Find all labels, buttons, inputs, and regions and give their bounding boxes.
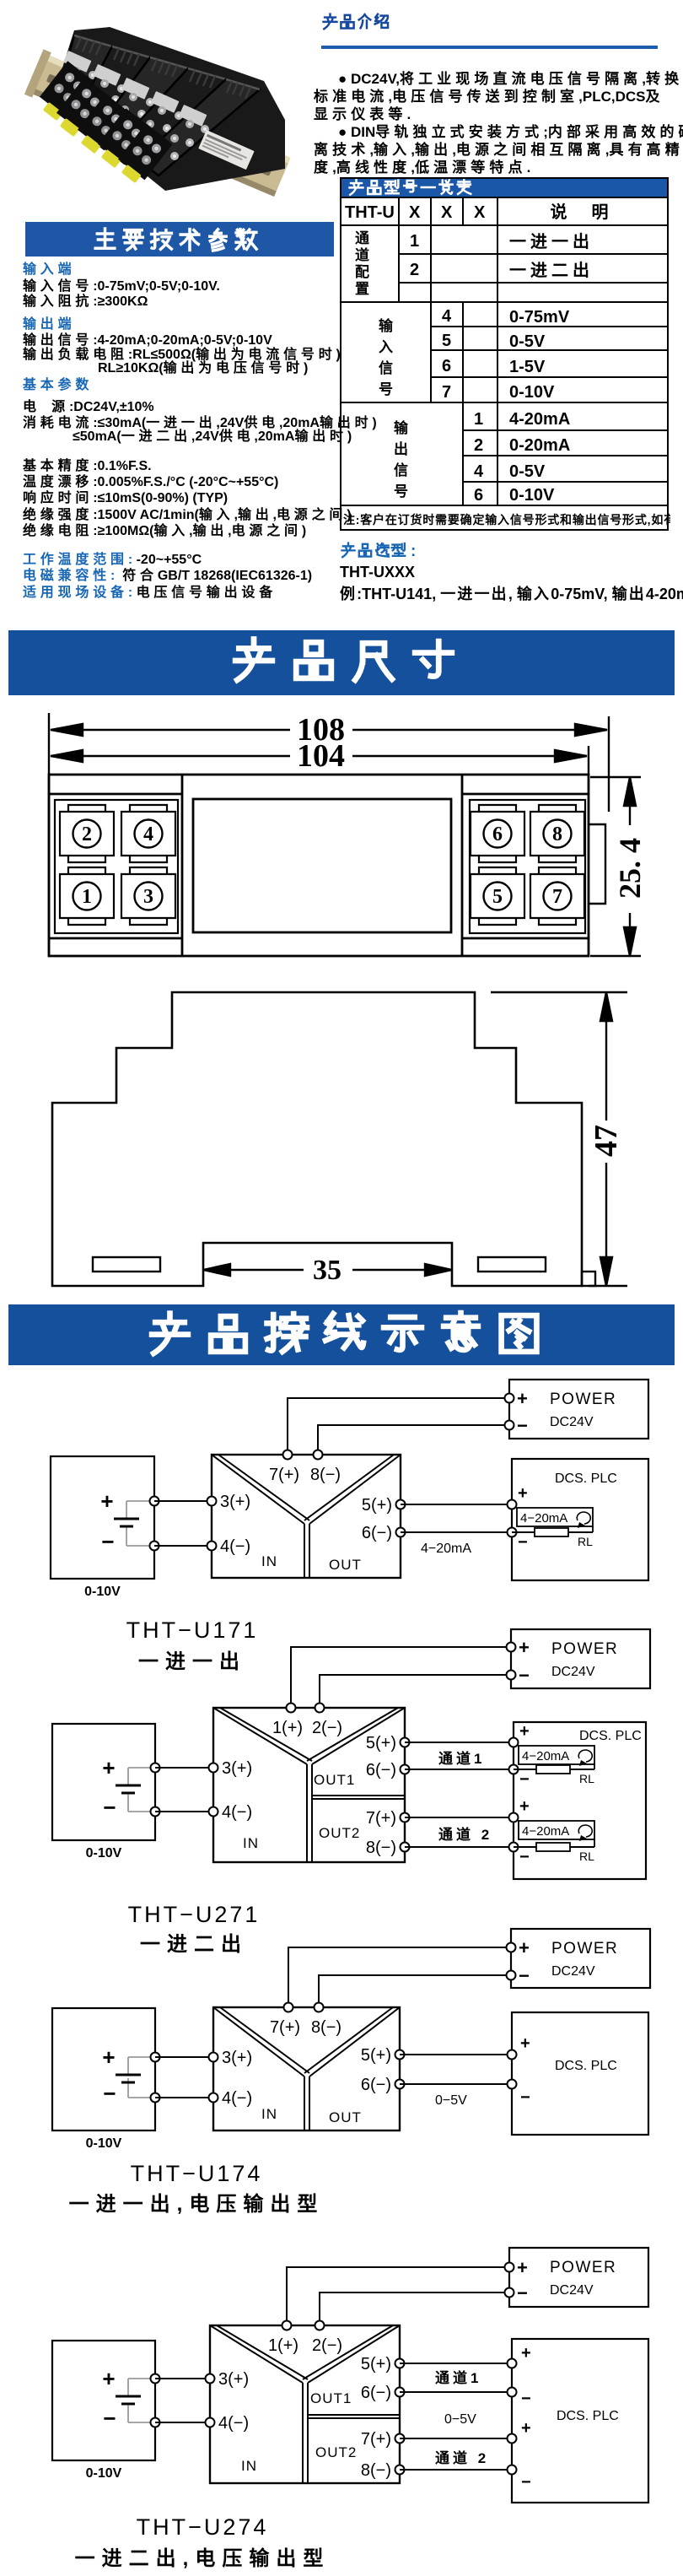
- svg-text:X: X: [474, 203, 486, 222]
- svg-text:通: 通: [355, 230, 369, 246]
- svg-text:3: 3: [143, 886, 153, 908]
- svg-text:−: −: [521, 2473, 531, 2492]
- svg-text:7: 7: [442, 383, 451, 402]
- svg-text:0−5V: 0−5V: [435, 2093, 467, 2108]
- svg-text:4−20mA: 4−20mA: [421, 1542, 471, 1556]
- svg-text:RL: RL: [579, 1850, 594, 1863]
- svg-text:104: 104: [297, 738, 345, 774]
- svg-text:1(+): 1(+): [272, 1719, 303, 1737]
- svg-text:1: 1: [474, 410, 483, 429]
- svg-text:+: +: [519, 1637, 530, 1658]
- svg-text:1: 1: [82, 886, 92, 908]
- svg-text:输: 输: [379, 317, 394, 334]
- svg-text:X: X: [441, 203, 453, 222]
- svg-text:通道 2: 通道 2: [438, 1826, 492, 1843]
- svg-text:DC24V: DC24V: [551, 1665, 595, 1679]
- svg-text:5: 5: [492, 886, 503, 908]
- svg-text:+: +: [521, 2419, 531, 2438]
- svg-text:信: 信: [379, 359, 393, 376]
- svg-text:−: −: [103, 2081, 116, 2106]
- svg-text:−: −: [519, 1848, 530, 1866]
- svg-text:一进二出: 一进二出: [140, 1933, 248, 1956]
- svg-text:25. 4: 25. 4: [613, 838, 647, 899]
- svg-text:4−20mA: 4−20mA: [522, 1749, 569, 1763]
- svg-text:35: 35: [313, 1255, 341, 1286]
- svg-text:一进二出: 一进二出: [509, 261, 594, 280]
- svg-text:RL: RL: [579, 1772, 594, 1785]
- svg-text:+: +: [100, 1488, 113, 1514]
- svg-text:−: −: [521, 2390, 531, 2408]
- svg-text:+: +: [102, 2044, 115, 2070]
- svg-text:号: 号: [394, 483, 408, 500]
- svg-text:−: −: [517, 2282, 528, 2303]
- svg-text:0-10V: 0-10V: [509, 383, 555, 402]
- svg-text:47: 47: [589, 1125, 624, 1157]
- svg-text:1-5V: 1-5V: [509, 358, 546, 376]
- svg-text:0-10V: 0-10V: [86, 1846, 122, 1860]
- svg-text:6: 6: [474, 486, 483, 505]
- svg-text:THT−U171: THT−U171: [126, 1617, 259, 1643]
- svg-text:号: 号: [379, 381, 393, 397]
- svg-text:配: 配: [355, 264, 369, 280]
- svg-text:1(+): 1(+): [268, 2336, 298, 2355]
- svg-text:8(−): 8(−): [366, 1839, 396, 1857]
- svg-text:OUT2: OUT2: [319, 1825, 360, 1841]
- svg-text:−: −: [519, 1770, 530, 1789]
- svg-text:5(+): 5(+): [366, 1734, 396, 1752]
- svg-text:通道 2: 通道 2: [435, 2449, 489, 2466]
- svg-text:−: −: [519, 1965, 530, 1986]
- svg-text:通道1: 通道1: [438, 1750, 485, 1767]
- svg-text:−: −: [103, 1795, 116, 1820]
- svg-text:DCS. PLC: DCS. PLC: [555, 1472, 617, 1486]
- svg-text:DC24V: DC24V: [550, 2283, 594, 2298]
- svg-text:+: +: [102, 1755, 115, 1780]
- svg-text:一进一出: 一进一出: [509, 232, 594, 251]
- svg-text:POWER: POWER: [550, 1391, 616, 1408]
- svg-text:OUT1: OUT1: [310, 2390, 352, 2406]
- svg-text:DCS. PLC: DCS. PLC: [557, 2409, 619, 2423]
- svg-text:+: +: [519, 1797, 530, 1816]
- svg-text:出: 出: [394, 440, 408, 457]
- svg-text:2(−): 2(−): [312, 1719, 342, 1737]
- svg-text:4−20mA: 4−20mA: [520, 1511, 567, 1526]
- svg-text:X: X: [409, 203, 421, 222]
- svg-text:信: 信: [394, 462, 408, 478]
- svg-text:OUT2: OUT2: [315, 2444, 357, 2460]
- svg-text:3(+): 3(+): [220, 1493, 250, 1511]
- svg-text:DC24V: DC24V: [550, 1415, 594, 1429]
- svg-text:3(+): 3(+): [218, 2370, 249, 2389]
- svg-text:通道1: 通道1: [435, 2369, 481, 2386]
- svg-text:+: +: [519, 1937, 530, 1958]
- svg-text:6: 6: [442, 357, 451, 375]
- svg-text:5(+): 5(+): [361, 2046, 391, 2065]
- svg-text:−: −: [517, 1415, 528, 1436]
- svg-text:THT−U174: THT−U174: [131, 2161, 263, 2186]
- svg-text:7(+): 7(+): [361, 2430, 391, 2449]
- svg-text:6: 6: [492, 824, 503, 845]
- svg-text:4(−): 4(−): [222, 1803, 252, 1822]
- svg-text:IN: IN: [241, 2458, 257, 2474]
- svg-text:−: −: [518, 1533, 528, 1552]
- svg-text:8(−): 8(−): [361, 2461, 391, 2480]
- svg-text:DC24V: DC24V: [551, 1964, 595, 1979]
- svg-text:0-10V: 0-10V: [84, 1585, 121, 1599]
- svg-text:THT-U: THT-U: [345, 203, 395, 222]
- svg-text:THT−U271: THT−U271: [128, 1902, 261, 1927]
- svg-text:+: +: [517, 2257, 528, 2278]
- svg-text:2: 2: [474, 436, 483, 455]
- svg-text:5(+): 5(+): [362, 1496, 392, 1515]
- svg-text:+: +: [517, 1388, 528, 1409]
- svg-text:POWER: POWER: [551, 1940, 618, 1958]
- svg-text:6(−): 6(−): [361, 2384, 391, 2402]
- svg-text:入: 入: [379, 339, 393, 355]
- svg-text:5(+): 5(+): [361, 2355, 391, 2373]
- svg-text:3(+): 3(+): [222, 2049, 252, 2067]
- svg-text:+: +: [520, 2034, 530, 2053]
- svg-text:3(+): 3(+): [222, 1759, 252, 1778]
- svg-text:6(−): 6(−): [366, 1761, 396, 1779]
- svg-text:7: 7: [552, 886, 562, 908]
- svg-text:0-10V: 0-10V: [86, 2466, 122, 2481]
- svg-text:7(+): 7(+): [366, 1809, 396, 1828]
- svg-text:5: 5: [442, 332, 451, 350]
- svg-text:6(−): 6(−): [361, 2076, 391, 2094]
- svg-text:置: 置: [355, 281, 369, 297]
- svg-text:道: 道: [355, 246, 369, 263]
- svg-text:4: 4: [442, 307, 452, 326]
- svg-text:−: −: [103, 2406, 116, 2431]
- svg-text:2: 2: [410, 261, 419, 279]
- svg-text:7(+): 7(+): [269, 1466, 299, 1484]
- svg-text:一进二出,电压输出型: 一进二出,电压输出型: [75, 2546, 331, 2570]
- svg-text:OUT: OUT: [329, 1557, 362, 1573]
- svg-text:−: −: [101, 1529, 114, 1554]
- svg-text:IN: IN: [243, 1835, 259, 1851]
- svg-text:4−20mA: 4−20mA: [522, 1824, 569, 1839]
- svg-text:DCS. PLC: DCS. PLC: [579, 1729, 642, 1743]
- svg-text:0-5V: 0-5V: [509, 332, 546, 351]
- svg-text:8: 8: [552, 824, 562, 845]
- svg-text:8(−): 8(−): [310, 1466, 341, 1484]
- svg-text:6(−): 6(−): [362, 1524, 392, 1542]
- svg-text:0-10V: 0-10V: [509, 486, 555, 505]
- svg-text:2: 2: [82, 824, 92, 845]
- svg-text:4: 4: [474, 462, 484, 481]
- svg-text:说 明: 说 明: [550, 202, 613, 222]
- svg-text:7(+): 7(+): [270, 2018, 300, 2037]
- svg-text:POWER: POWER: [550, 2259, 616, 2276]
- svg-text:0-10V: 0-10V: [86, 2136, 122, 2151]
- svg-text:+: +: [102, 2366, 115, 2391]
- svg-text:+: +: [519, 1722, 530, 1741]
- svg-text:0-75mV: 0-75mV: [509, 308, 570, 327]
- svg-text:+: +: [518, 1484, 528, 1503]
- svg-text:POWER: POWER: [551, 1640, 618, 1658]
- svg-text:4-20mA: 4-20mA: [509, 410, 570, 429]
- svg-text::: :: [411, 543, 416, 559]
- svg-text:4(−): 4(−): [222, 2089, 252, 2108]
- svg-text:1: 1: [410, 232, 419, 251]
- svg-text:DCS. PLC: DCS. PLC: [555, 2059, 617, 2073]
- svg-text:+: +: [521, 2344, 531, 2363]
- svg-text:4(−): 4(−): [218, 2414, 249, 2433]
- svg-text:输: 输: [394, 419, 409, 436]
- svg-text:4: 4: [143, 824, 153, 845]
- svg-text:OUT: OUT: [329, 2109, 362, 2125]
- svg-text:−: −: [520, 2088, 530, 2107]
- svg-text:OUT1: OUT1: [314, 1772, 355, 1788]
- svg-text:一进一出,电压输出型: 一进一出,电压输出型: [69, 2192, 325, 2216]
- svg-text:0−5V: 0−5V: [444, 2412, 476, 2427]
- svg-text:2(−): 2(−): [312, 2336, 342, 2355]
- svg-text:RL: RL: [578, 1535, 593, 1548]
- svg-text:THT−U274: THT−U274: [137, 2514, 269, 2540]
- svg-text:0-5V: 0-5V: [509, 462, 546, 481]
- svg-text:4(−): 4(−): [220, 1537, 250, 1556]
- svg-text:IN: IN: [261, 2106, 277, 2122]
- svg-text:8(−): 8(−): [311, 2018, 341, 2037]
- svg-text:IN: IN: [261, 1553, 277, 1569]
- svg-text:一进一出: 一进一出: [138, 1650, 246, 1673]
- svg-text:0-20mA: 0-20mA: [509, 436, 570, 455]
- svg-text:注:客户在订货时需要确定输入信号形式和输出信号形式,如有特殊: 注:客户在订货时需要确定输入信号形式和输出信号形式,如有特殊需要可以定制.: [343, 513, 670, 527]
- svg-text:−: −: [519, 1665, 530, 1686]
